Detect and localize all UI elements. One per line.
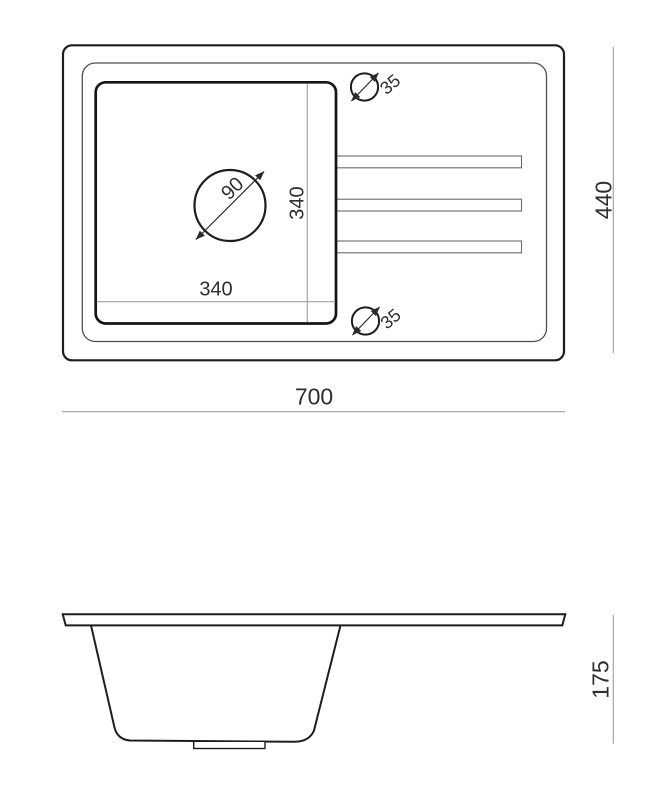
side-bowl-profile	[91, 625, 341, 741]
drainboard-ridge-1	[337, 156, 522, 168]
drainboard-ridge-3	[337, 241, 522, 253]
overall-width-label: 700	[295, 384, 333, 410]
side-view: 175	[63, 614, 614, 748]
tap-hole-bottom-label: 35	[377, 305, 405, 333]
overall-depth-label: 440	[591, 181, 617, 219]
side-depth-label: 175	[588, 660, 614, 698]
side-drain-flange	[194, 741, 265, 748]
drain-diameter-label: 90	[217, 173, 248, 204]
drainboard-ridge-2	[337, 199, 522, 211]
tap-hole-bottom	[352, 307, 380, 335]
drawing-svg: 700 440 340 340 90 35 35 175	[0, 0, 645, 800]
sink-technical-drawing: 700 440 340 340 90 35 35 175	[0, 0, 645, 800]
bowl-depth-label: 340	[287, 186, 309, 219]
tap-hole-top-label: 35	[376, 70, 404, 98]
tap-hole-top	[351, 73, 379, 101]
bowl-width-label: 340	[199, 279, 232, 301]
side-top-plate	[63, 614, 566, 625]
top-view: 700 440 340 340 90 35 35	[62, 45, 617, 411]
